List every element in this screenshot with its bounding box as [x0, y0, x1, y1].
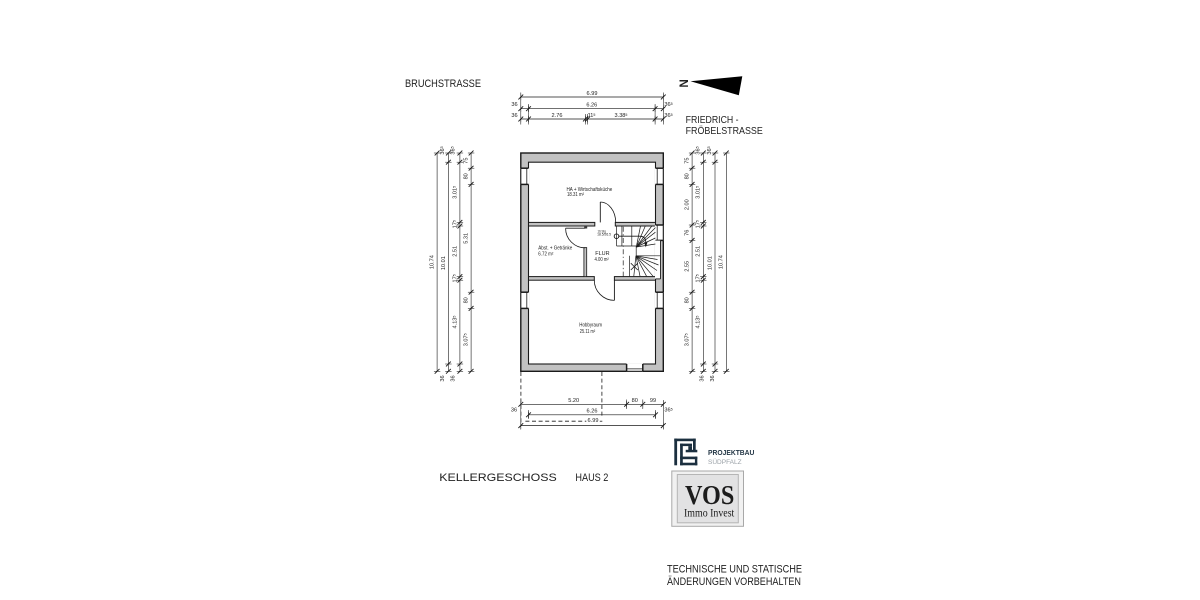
svg-text:36: 36 — [700, 375, 706, 381]
svg-text:365: 365 — [664, 407, 672, 413]
svg-text:TECHNISCHE UND STATISCHE: TECHNISCHE UND STATISCHE — [667, 564, 802, 576]
svg-text:Hobbyraum: Hobbyraum — [579, 322, 602, 328]
svg-text:6.72 m²: 6.72 m² — [538, 251, 553, 257]
svg-text:5.31: 5.31 — [464, 233, 470, 244]
svg-text:6.99: 6.99 — [588, 418, 599, 424]
svg-text:80: 80 — [632, 398, 638, 404]
svg-text:2.51: 2.51 — [452, 246, 458, 257]
svg-text:2.51: 2.51 — [696, 246, 702, 257]
svg-text:FRIEDRICH -: FRIEDRICH - — [686, 115, 739, 126]
svg-text:365: 365 — [664, 113, 672, 119]
svg-text:N: N — [676, 79, 688, 87]
svg-text:115: 115 — [588, 113, 596, 119]
svg-text:36: 36 — [451, 375, 457, 381]
svg-text:80: 80 — [464, 297, 470, 303]
svg-text:99: 99 — [650, 398, 656, 404]
svg-text:36: 36 — [511, 113, 517, 119]
svg-text:18.31 m²: 18.31 m² — [567, 192, 584, 198]
svg-text:10.74: 10.74 — [719, 255, 725, 269]
svg-text:36: 36 — [511, 102, 517, 108]
svg-text:SÜDPFALZ: SÜDPFALZ — [708, 458, 742, 466]
svg-text:5.20: 5.20 — [568, 398, 579, 404]
svg-text:6.99: 6.99 — [587, 91, 598, 97]
svg-text:25.11 m²: 25.11 m² — [580, 329, 596, 335]
svg-text:BRUCHSTRASSE: BRUCHSTRASSE — [405, 78, 481, 90]
svg-text:HAUS 2: HAUS 2 — [575, 472, 608, 484]
svg-text:10.01: 10.01 — [707, 256, 713, 270]
svg-text:6.26: 6.26 — [587, 409, 598, 415]
svg-text:80: 80 — [464, 173, 470, 179]
svg-text:3.015: 3.015 — [696, 186, 702, 199]
svg-text:365: 365 — [450, 146, 456, 154]
svg-text:175: 175 — [452, 220, 458, 228]
svg-text:75: 75 — [685, 157, 691, 163]
svg-text:3.015: 3.015 — [452, 186, 458, 199]
svg-text:10.01: 10.01 — [441, 256, 447, 270]
svg-text:PROJEKTBAU: PROJEKTBAU — [708, 448, 754, 457]
svg-text:4.135: 4.135 — [696, 316, 702, 329]
svg-text:2.55: 2.55 — [685, 261, 691, 272]
svg-text:36: 36 — [511, 408, 517, 414]
svg-text:175: 175 — [696, 220, 702, 228]
svg-text:FRÖBELSTRASSE: FRÖBELSTRASSE — [686, 125, 763, 137]
svg-text:36: 36 — [440, 375, 446, 381]
svg-text:18.5/26.5: 18.5/26.5 — [597, 231, 612, 236]
svg-text:365: 365 — [695, 146, 701, 154]
svg-text:36: 36 — [710, 375, 716, 381]
svg-text:365: 365 — [664, 102, 672, 108]
svg-text:2.76: 2.76 — [552, 113, 563, 119]
svg-text:Immo Invest: Immo Invest — [684, 506, 735, 520]
svg-text:KELLERGESCHOSS: KELLERGESCHOSS — [439, 472, 556, 484]
svg-text:3.075: 3.075 — [684, 333, 690, 346]
svg-text:3.075: 3.075 — [463, 333, 469, 346]
svg-text:80: 80 — [685, 297, 691, 303]
svg-text:4.00 m²: 4.00 m² — [595, 257, 610, 263]
svg-text:ÄNDERUNGEN VORBEHALTEN: ÄNDERUNGEN VORBEHALTEN — [667, 576, 801, 588]
svg-text:80: 80 — [685, 173, 691, 179]
svg-text:365: 365 — [707, 146, 713, 154]
svg-text:175: 175 — [452, 274, 458, 282]
svg-text:4.135: 4.135 — [452, 316, 458, 329]
svg-text:6.26: 6.26 — [586, 102, 597, 108]
svg-text:175: 175 — [696, 274, 702, 282]
svg-text:365: 365 — [440, 146, 446, 154]
svg-text:3.385: 3.385 — [615, 113, 628, 119]
svg-text:75: 75 — [464, 157, 470, 163]
svg-text:2.00: 2.00 — [685, 199, 691, 210]
svg-text:76: 76 — [685, 230, 691, 236]
svg-text:10.74: 10.74 — [430, 255, 436, 269]
